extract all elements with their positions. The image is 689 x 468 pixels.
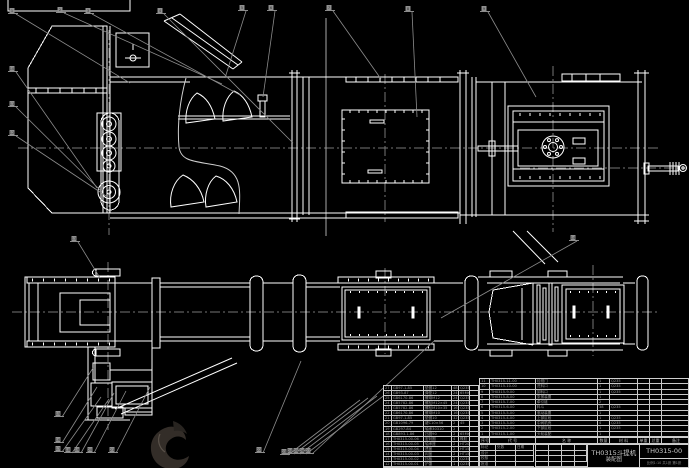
leader-line <box>164 14 293 143</box>
leader-line <box>294 398 368 454</box>
leader-line <box>225 11 246 78</box>
leader-line <box>16 107 102 192</box>
balloon-label: 24 <box>288 449 293 453</box>
balloon-label: 20 <box>88 448 92 452</box>
balloon-label: 11 <box>10 102 14 106</box>
parts-list-continuation: 27GB97.1-85垫圈1248Q23526GB93-87弹垫122465Mn… <box>383 385 479 468</box>
leader-line <box>263 361 301 453</box>
balloon-label: 21 <box>110 448 114 452</box>
bom-cell <box>516 462 534 468</box>
bom-cell: 12 <box>384 462 392 467</box>
balloon-label: 26 <box>300 449 304 453</box>
leader-line <box>16 136 106 196</box>
leader-line <box>333 11 381 79</box>
end-flange <box>637 276 648 350</box>
balloon-label: 22 <box>257 448 261 452</box>
leader-line <box>288 400 360 455</box>
balloon-label: 8 <box>407 7 409 11</box>
balloon-label: 18 <box>66 448 70 452</box>
sheet-frame-corner <box>8 0 130 11</box>
balloon-label: 5 <box>241 6 243 10</box>
balloon-label: 14 <box>571 236 576 240</box>
drawing-title-model: TH0315斗提机 <box>591 449 636 457</box>
balloon-label: 9 <box>483 7 485 11</box>
cad-canvas: 1234567891011121314151617181920212223242… <box>0 0 689 468</box>
leader-line <box>92 14 240 95</box>
signature-grid <box>536 445 589 467</box>
bom-cell: Q235 <box>459 462 470 467</box>
balloon-label: 7 <box>328 6 330 10</box>
balloon-label: 6 <box>270 6 272 10</box>
inspection-door-plan <box>342 287 430 340</box>
title-area: TH0315斗提机 装配图 <box>588 445 640 467</box>
coupling <box>93 363 110 380</box>
bucket <box>205 176 237 207</box>
leader-line <box>16 14 130 83</box>
bom-cell <box>549 462 562 468</box>
bom-cell: 护罩 <box>424 462 452 467</box>
bom-cell <box>575 462 587 468</box>
balloon-label: 16 <box>56 438 60 442</box>
curved-casing <box>178 78 239 214</box>
leader-line <box>62 387 97 443</box>
balloon-label: 12 <box>10 131 14 135</box>
leader-line <box>72 399 109 453</box>
parts-list-main: 11TH0315-11-00检视门1Q23510TH0315-10-00进料口1… <box>479 378 689 438</box>
head-inner-panel <box>508 106 609 186</box>
balloon-label: 13 <box>72 237 76 241</box>
drawing-title-type: 装配图 <box>606 457 623 464</box>
hopper-plan <box>489 283 533 345</box>
drawing-number-area: TH0315-00 比例1:10 共1张 第1张 <box>640 445 688 467</box>
title-block: 标记处数日期设计校核批准 TH0315斗提机 装配图 TH0315-00 比例1… <box>479 444 689 468</box>
casing-flange <box>293 275 306 352</box>
balloon-label: 10 <box>10 67 14 71</box>
top-view-curves <box>98 14 687 214</box>
leader-line <box>78 242 100 278</box>
balloon-label: 27 <box>306 449 310 453</box>
balloon-label: 2 <box>59 8 61 12</box>
leader-line <box>488 12 536 97</box>
bucket <box>171 175 204 207</box>
bom-cell: 1 <box>452 462 459 467</box>
bom-cell <box>536 462 549 468</box>
balloon-label: 25 <box>294 449 298 453</box>
leader-line <box>62 397 101 452</box>
balloon-label: 19 <box>75 448 79 452</box>
balloon-label: 15 <box>56 412 60 416</box>
leader-line <box>263 11 275 97</box>
projection-lines <box>513 231 558 264</box>
bom-cell <box>496 462 516 468</box>
drawing-number: TH0315-00 <box>640 445 688 459</box>
bom-cell: 批准 <box>480 462 496 468</box>
balloon-label: 3 <box>87 9 89 13</box>
drawing-footer: 比例1:10 共1张 第1张 <box>640 459 688 467</box>
bom-cell: TH0315-00-01 <box>392 462 424 467</box>
leader-line <box>306 394 386 454</box>
balloon-label: 17 <box>56 447 60 451</box>
casing-flange <box>250 276 263 351</box>
balloon-label: 23 <box>282 450 286 454</box>
leader-line <box>412 12 417 117</box>
revision-grid: 标记处数日期设计校核批准 <box>480 445 536 467</box>
balloon-label: 1 <box>11 9 13 13</box>
leader-line <box>441 241 577 318</box>
watermark-logo <box>151 421 189 468</box>
bom-cell <box>562 462 575 468</box>
casing-flange <box>465 276 478 350</box>
